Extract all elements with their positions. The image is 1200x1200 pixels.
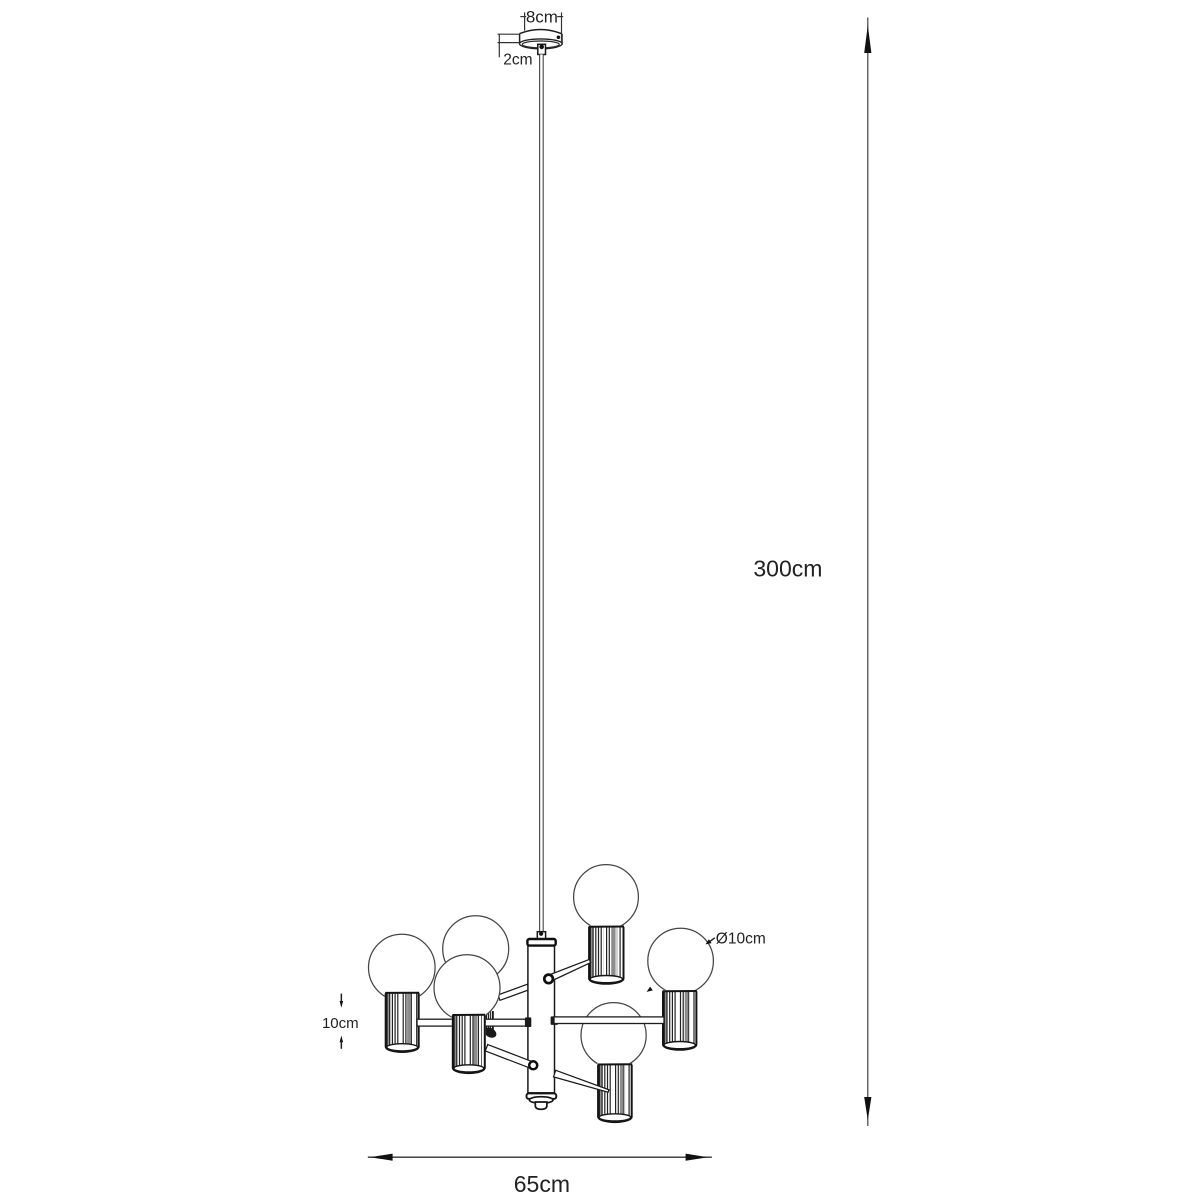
- svg-text:65cm: 65cm: [514, 1171, 570, 1197]
- svg-text:Ø10cm: Ø10cm: [716, 930, 766, 947]
- svg-text:2cm: 2cm: [503, 52, 532, 69]
- svg-text:8cm: 8cm: [526, 8, 558, 27]
- svg-text:10cm: 10cm: [322, 1015, 359, 1032]
- svg-text:300cm: 300cm: [753, 556, 822, 582]
